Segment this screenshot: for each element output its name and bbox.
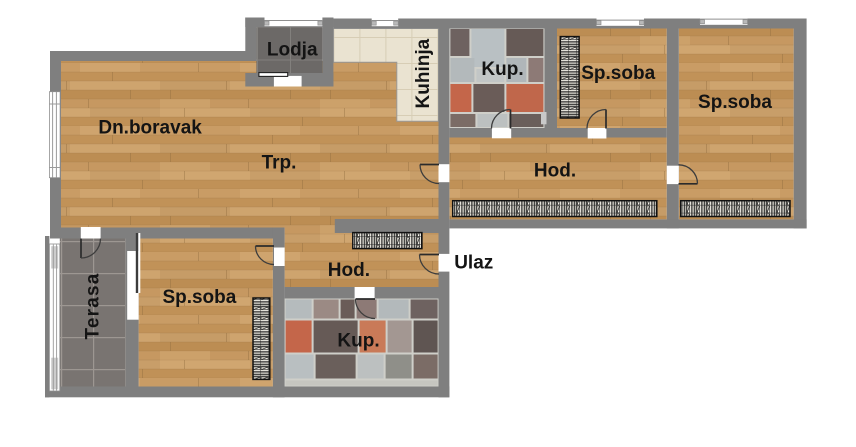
svg-text:Hod.: Hod. [534,161,576,182]
svg-text:Lodja: Lodja [267,40,318,61]
svg-text:Ulaz: Ulaz [454,252,493,273]
svg-text:Trp.: Trp. [262,153,297,174]
svg-text:Kuhinja: Kuhinja [413,38,434,108]
svg-text:Kup.: Kup. [481,59,523,80]
svg-text:Terasa: Terasa [83,272,104,339]
svg-text:Sp.soba: Sp.soba [581,63,655,84]
svg-text:Kup.: Kup. [337,331,379,352]
svg-text:Sp.soba: Sp.soba [698,92,772,113]
svg-text:Sp.soba: Sp.soba [162,287,236,308]
svg-text:Dn.boravak: Dn.boravak [98,118,202,139]
svg-text:Hod.: Hod. [328,260,370,281]
